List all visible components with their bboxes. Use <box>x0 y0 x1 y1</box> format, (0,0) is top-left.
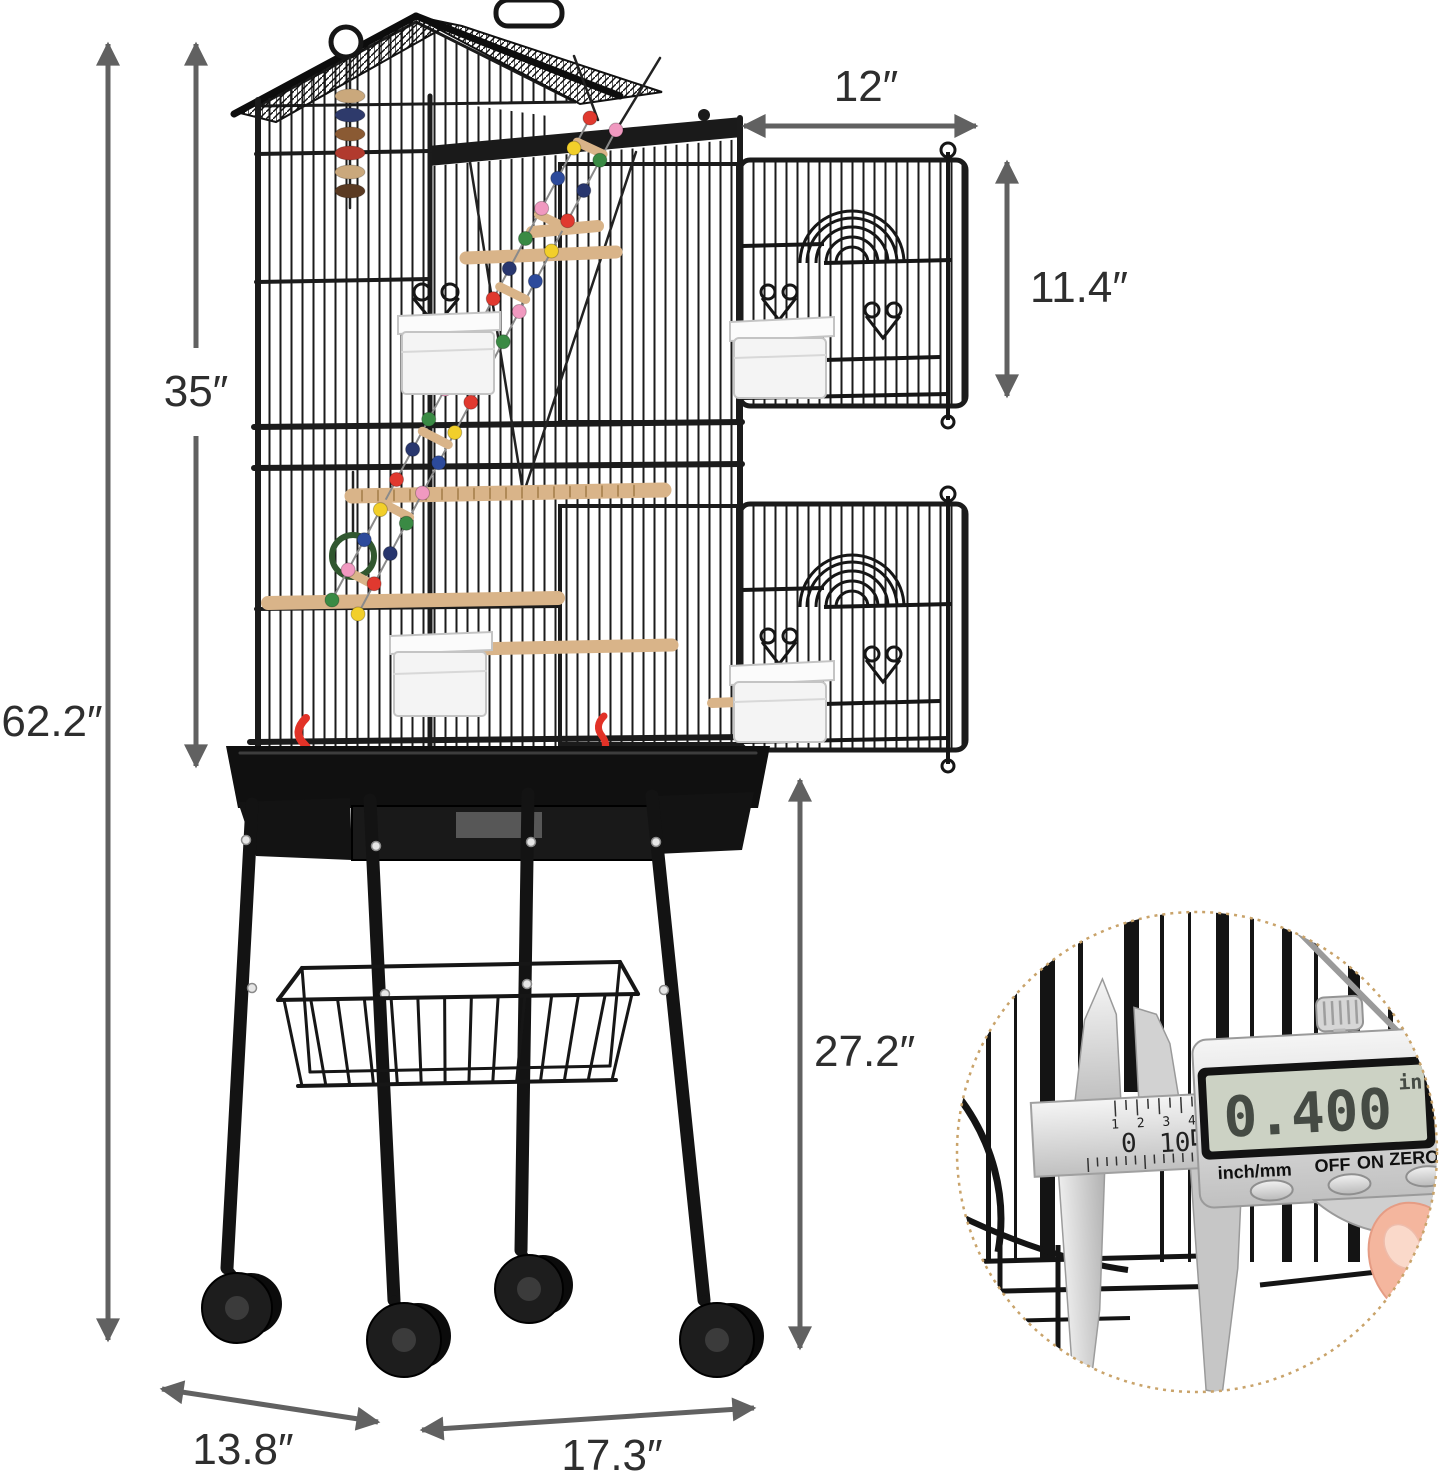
dimension-base-depth: 13.8″ <box>162 1389 378 1474</box>
scale-tick <box>1145 1155 1146 1169</box>
bird-cage <box>234 0 816 784</box>
dimension-stand-height: 27.2″ <box>800 780 915 1348</box>
knurl-line <box>1340 1001 1341 1025</box>
feeder-cup-on-door <box>730 317 834 398</box>
basket-wire <box>284 1000 302 1086</box>
cage-door-open-upper <box>730 143 966 428</box>
door-height-label: 11.4″ <box>1030 263 1128 312</box>
ladder-bead <box>528 274 542 288</box>
stand-height-label: 27.2″ <box>814 1027 915 1076</box>
caliper-inset: 1 2 3 4 0 10 0.400 in inch/mm OFF ON ZER… <box>952 900 1445 1405</box>
ladder-bead <box>357 533 371 547</box>
ladder-bead <box>416 486 430 500</box>
ladder-bead <box>545 244 559 258</box>
toy-disc <box>335 127 365 141</box>
ladder-bead <box>512 305 526 319</box>
ladder-bead <box>367 577 381 591</box>
knurl-line <box>1348 1000 1349 1024</box>
base-width-label: 17.3″ <box>561 1431 662 1476</box>
ladder-bead <box>448 426 462 440</box>
caliper-scale-ten: 10 <box>1158 1128 1191 1160</box>
ladder-bead <box>593 153 607 167</box>
ladder-bead <box>577 184 591 198</box>
caliper-mode-label: inch/mm <box>1217 1159 1292 1183</box>
wheel-back-left <box>202 1268 282 1343</box>
ladder-bead <box>486 292 500 306</box>
ladder-bead <box>551 171 565 185</box>
toy-disc <box>335 89 365 103</box>
lcd-unit: in <box>1398 1069 1423 1094</box>
dimension-cage-height: 35″ <box>164 44 229 766</box>
ladder-bead <box>432 456 446 470</box>
scale-tick <box>1159 1098 1160 1114</box>
caliper-off-label: OFF <box>1314 1154 1351 1176</box>
caliper-scale-zero: 0 <box>1120 1128 1137 1159</box>
feeder-cup-inside-upper <box>398 312 500 394</box>
stand-apron-right <box>654 792 754 854</box>
ladder-bead <box>383 547 397 561</box>
ladder-bead <box>390 473 404 487</box>
dimension-total-height: 62.2″ <box>1 44 108 1340</box>
ladder-bead <box>464 395 478 409</box>
roof-handle <box>496 0 562 26</box>
dimension-door-width: 12″ <box>744 62 976 126</box>
ladder-bead <box>406 442 420 456</box>
scale-tick <box>1181 1097 1182 1113</box>
scale-tick <box>1115 1101 1116 1117</box>
ladder-bead <box>341 563 355 577</box>
cage-height-label: 35″ <box>164 367 229 416</box>
lcd-reading: 0.400 <box>1222 1077 1394 1151</box>
top-knob <box>698 109 710 121</box>
wheel-front-left <box>367 1300 451 1377</box>
knurl-line <box>1332 1001 1333 1025</box>
product-dimension-diagram: 62.2″ 35″ 12″ 11.4″ 27.2″ 13.8″ 17.3″ <box>0 0 1445 1476</box>
ladder-bead <box>535 201 549 215</box>
wheel-back-right <box>495 1250 573 1323</box>
base-depth-arrow <box>162 1389 378 1422</box>
toy-disc <box>335 108 365 122</box>
ladder-bead <box>567 141 581 155</box>
roof-round-window <box>331 27 361 57</box>
ladder-bead <box>373 503 387 517</box>
toy-disc <box>335 146 365 160</box>
ladder-bead <box>561 214 575 228</box>
scale-tick <box>1088 1158 1089 1172</box>
perch <box>466 252 616 258</box>
wire-basket-shelf <box>278 962 638 1086</box>
door-width-label: 12″ <box>834 62 899 111</box>
toy-disc <box>335 165 365 179</box>
bird-cage-diagram-svg: 62.2″ 35″ 12″ 11.4″ 27.2″ 13.8″ 17.3″ <box>0 0 1445 1476</box>
rolling-stand <box>202 746 770 1377</box>
ladder-bead <box>502 262 516 276</box>
base-width-arrow <box>422 1408 754 1430</box>
ladder-bead <box>351 607 365 621</box>
leg-back-left <box>227 804 252 1268</box>
ladder-bead <box>496 335 510 349</box>
toy-disc <box>335 184 365 198</box>
scale-tick <box>1192 1096 1193 1106</box>
feeder-cup-inside-lower <box>390 632 492 716</box>
stand-legs <box>227 794 704 1300</box>
caster-wheels <box>202 1250 764 1377</box>
ladder-bead <box>325 593 339 607</box>
ladder-bead <box>609 123 623 137</box>
ladder-bead <box>583 111 597 125</box>
wheel-front-right <box>680 1300 764 1377</box>
total-height-label: 62.2″ <box>1 697 102 746</box>
dimension-base-width: 17.3″ <box>422 1408 754 1476</box>
cage-door-open-lower <box>730 487 966 772</box>
ladder-bead <box>422 412 436 426</box>
scale-tick <box>1148 1099 1149 1109</box>
ladder-bead <box>399 516 413 530</box>
scale-tick <box>1137 1099 1138 1115</box>
scale-tick <box>1126 1100 1127 1110</box>
knurl-line <box>1356 1000 1357 1024</box>
perch <box>268 598 558 603</box>
base-depth-label: 13.8″ <box>192 1425 293 1474</box>
ladder-bead <box>519 232 533 246</box>
dimension-door-height: 11.4″ <box>1007 162 1128 396</box>
caliper-on-label: ON <box>1356 1152 1384 1173</box>
knurl-line <box>1324 1001 1325 1025</box>
scale-tick <box>1170 1098 1171 1108</box>
leg-front-left <box>370 800 394 1300</box>
leg-front-right <box>652 796 704 1300</box>
